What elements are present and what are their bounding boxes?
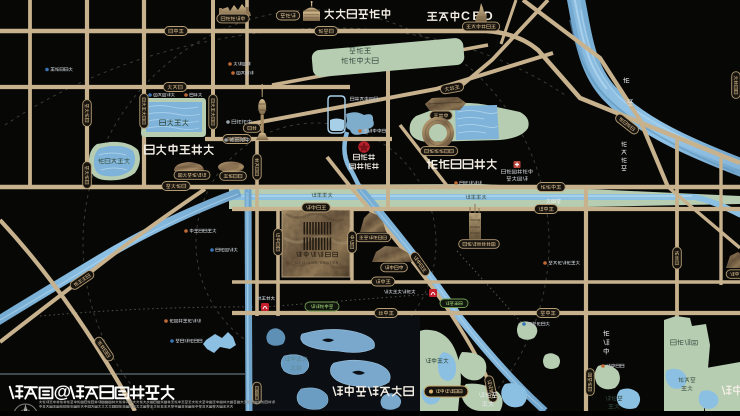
svg-text:C: C	[461, 9, 470, 23]
svg-text:@: @	[54, 382, 71, 402]
svg-text:MEIJIANG CENTER: MEIJIANG CENTER	[295, 261, 339, 265]
